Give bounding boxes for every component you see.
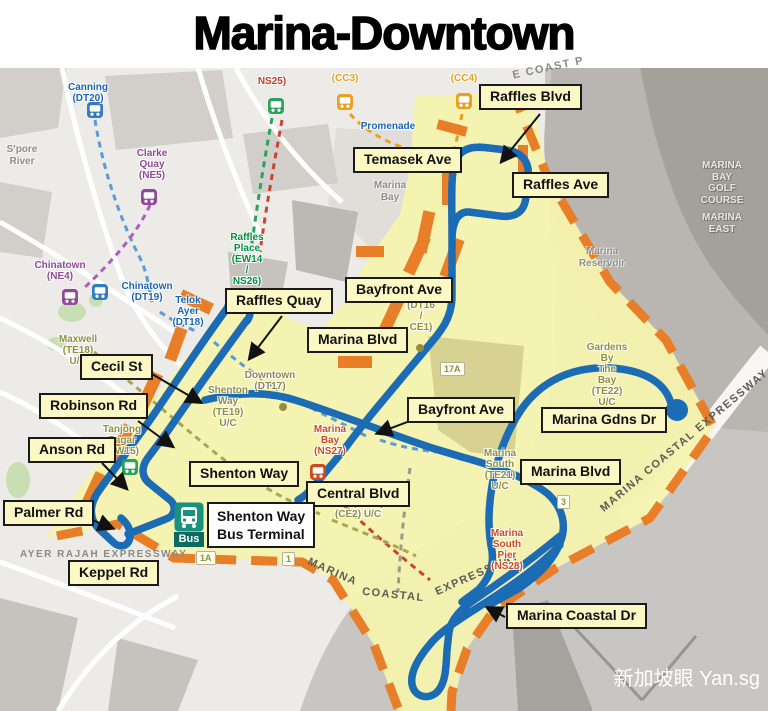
label-marina-blvd-east: Marina Blvd xyxy=(520,459,621,485)
page-title: Marina-Downtown xyxy=(0,0,768,66)
area-marina-reservoir: Marina Reservoir xyxy=(579,246,625,269)
mrt-icon-canning xyxy=(87,102,103,118)
station-ns25: NS25) xyxy=(258,76,286,87)
station-downtown: Downtown (DT17) xyxy=(245,370,296,392)
expressway-ayer-rajah: AYER RAJAH EXPRESSWAY xyxy=(20,549,187,560)
mrt-dot-bayfront xyxy=(416,344,424,352)
map-screenshot: Marina-Downtown S'pore River Marina Bay … xyxy=(0,0,768,711)
watermark: 新加坡眼 Yan.sg xyxy=(614,662,760,691)
mrt-icon-cc3 xyxy=(337,94,353,110)
mrt-icon-chinatown-dt19 xyxy=(92,284,108,300)
mrt-icon-cc4 xyxy=(456,93,472,109)
area-marina-bay: Marina Bay xyxy=(374,180,406,203)
station-chinatown-ne4: Chinatown (NE4) xyxy=(34,260,85,282)
label-shenton-way: Shenton Way xyxy=(189,461,299,487)
road-badge-1a: 1A xyxy=(196,551,216,565)
station-canning: Canning (DT20) xyxy=(68,82,108,104)
route-terminus-dot xyxy=(666,399,688,421)
bus-terminal: Bus Shenton Way Bus Terminal xyxy=(174,502,315,548)
station-clarke-quay: Clarke Quay (NE5) xyxy=(137,148,168,181)
mrt-icon-clarke-quay xyxy=(141,189,157,205)
label-keppel-rd: Keppel Rd xyxy=(68,560,159,586)
mrt-icon-ns25 xyxy=(268,98,284,114)
station-telok-ayer: Telok Ayer (DT18) xyxy=(172,295,203,328)
mrt-dot-shenton-way xyxy=(279,403,287,411)
label-cecil-st: Cecil St xyxy=(80,354,153,380)
bus-terminal-label: Shenton Way Bus Terminal xyxy=(207,502,315,548)
station-bayfront: (DT16 / CE1) xyxy=(407,300,435,333)
station-marina-south: Marina South (TE21) U/C xyxy=(484,448,516,492)
label-raffles-blvd: Raffles Blvd xyxy=(479,84,582,110)
label-anson-rd: Anson Rd xyxy=(28,437,116,463)
station-marina-bay-ns27: Marina Bay (NS27) xyxy=(314,424,346,457)
station-shenton-way: Shenton Way (TE19) U/C xyxy=(208,385,248,429)
station-cc4: (CC4) xyxy=(451,73,478,84)
area-spore-river: S'pore River xyxy=(7,144,38,167)
mrt-icon-tanjong-pagar xyxy=(122,459,138,475)
road-badge-3: 3 xyxy=(557,495,570,509)
area-golf-course: MARINA BAY GOLF COURSE xyxy=(701,160,744,206)
label-temasek-ave: Temasek Ave xyxy=(353,147,462,173)
station-marina-south-pier: Marina South Pier (NS28) xyxy=(491,528,523,572)
station-chinatown-dt19: Chinatown (DT19) xyxy=(121,281,172,303)
bus-icon-caption: Bus xyxy=(174,532,204,547)
label-raffles-quay: Raffles Quay xyxy=(225,288,333,314)
label-palmer-rd: Palmer Rd xyxy=(3,500,94,526)
label-central-blvd: Central Blvd xyxy=(306,481,410,507)
station-promenade: Promenade xyxy=(361,121,415,132)
label-marina-gdns-dr: Marina Gdns Dr xyxy=(541,407,667,433)
station-raffles-place: Raffles Place (EW14 / NS26) xyxy=(230,232,263,287)
label-bayfront-ave-south: Bayfront Ave xyxy=(407,397,515,423)
area-marina-east: MARINA EAST xyxy=(702,212,742,235)
label-bayfront-ave-north: Bayfront Ave xyxy=(345,277,453,303)
label-robinson-rd: Robinson Rd xyxy=(39,393,148,419)
label-raffles-ave: Raffles Ave xyxy=(512,172,609,198)
station-gardens-by-the-bay: Gardens By The Bay (TE22) U/C xyxy=(587,342,628,408)
road-badge-1: 1 xyxy=(282,552,295,566)
bus-icon: Bus xyxy=(174,502,204,547)
label-marina-coastal-dr: Marina Coastal Dr xyxy=(506,603,647,629)
mrt-icon-chinatown-ne4 xyxy=(62,289,78,305)
label-marina-blvd-center: Marina Blvd xyxy=(307,327,408,353)
mrt-icon-marina-bay-ns27 xyxy=(310,464,326,480)
road-badge-17a: 17A xyxy=(440,362,465,376)
station-cc3: (CC3) xyxy=(332,73,359,84)
